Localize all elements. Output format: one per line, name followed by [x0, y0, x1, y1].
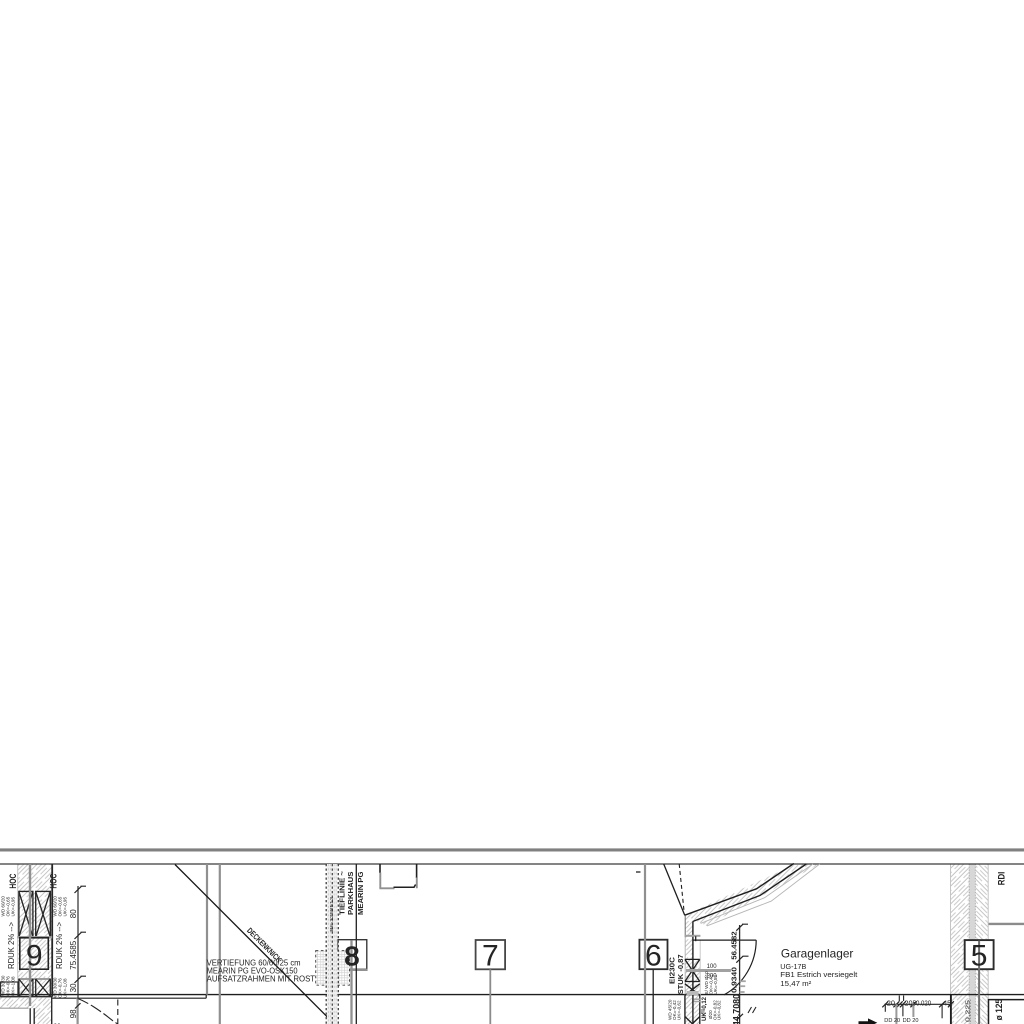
- svg-text:80: 80: [69, 909, 78, 918]
- svg-text:5: 5: [971, 940, 988, 973]
- svg-text:0.9340: 0.9340: [731, 967, 738, 993]
- svg-text:45: 45: [943, 998, 951, 1007]
- svg-text:HOC: HOC: [48, 874, 59, 889]
- svg-text:PARKHAUS: PARKHAUS: [346, 872, 355, 916]
- svg-text:UK=-0,62: UK=-0,62: [677, 1000, 682, 1020]
- svg-text:AUFSATZRAHMEN MIT ROST: AUFSATZRAHMEN MIT ROST: [207, 974, 316, 983]
- svg-text:0,225: 0,225: [965, 1000, 971, 1022]
- svg-text:UK=-1,08: UK=-1,08: [63, 978, 68, 998]
- svg-text:30: 30: [69, 983, 78, 992]
- svg-text:UK=-1,08: UK=-1,08: [11, 976, 16, 996]
- svg-text:75.4585: 75.4585: [69, 940, 78, 969]
- svg-text:STUK -0,87: STUK -0,87: [676, 954, 685, 994]
- svg-text:Garagenlager: Garagenlager: [781, 946, 854, 960]
- svg-text:UK=-0,95: UK=-0,95: [63, 897, 68, 917]
- svg-text:56.4582: 56.4582: [731, 931, 738, 960]
- svg-text:98: 98: [69, 1009, 78, 1018]
- svg-text:MEARIN PG: MEARIN PG: [356, 871, 365, 915]
- svg-text:RDI: RDI: [996, 872, 1007, 886]
- svg-text:20: 20: [887, 998, 895, 1007]
- svg-text:50.020: 50.020: [913, 998, 932, 1007]
- svg-text:UK -0,12: UK -0,12: [702, 996, 708, 1021]
- svg-text:ø 125: ø 125: [994, 999, 1004, 1021]
- svg-text:DD 20: DD 20: [884, 1018, 900, 1024]
- svg-text:9: 9: [26, 939, 43, 972]
- svg-text:UK=-0,82: UK=-0,82: [717, 1000, 722, 1020]
- svg-text:UK=-0,52: UK=-0,52: [713, 975, 718, 995]
- svg-text:UK=-0,95: UK=-0,95: [11, 897, 16, 917]
- svg-text:044.7080: 044.7080: [732, 994, 742, 1024]
- svg-text:100: 100: [707, 964, 718, 970]
- svg-text:7: 7: [482, 940, 499, 973]
- svg-text:FB1 Estrich versiegelt: FB1 Estrich versiegelt: [780, 972, 857, 979]
- svg-text:DD 20: DD 20: [903, 1018, 919, 1024]
- svg-text:RDUK 2% -->: RDUK 2% -->: [54, 922, 64, 969]
- svg-text:B6-3258513: B6-3258513: [329, 896, 334, 932]
- svg-text:HOC: HOC: [8, 874, 19, 889]
- svg-text:20: 20: [904, 998, 912, 1007]
- svg-text:6: 6: [645, 940, 662, 973]
- svg-text:15,47 m²: 15,47 m²: [780, 981, 812, 988]
- svg-text:8: 8: [344, 941, 360, 972]
- svg-text:UG-17B: UG-17B: [780, 962, 806, 971]
- svg-text:RDUK 2% -->: RDUK 2% -->: [6, 922, 16, 969]
